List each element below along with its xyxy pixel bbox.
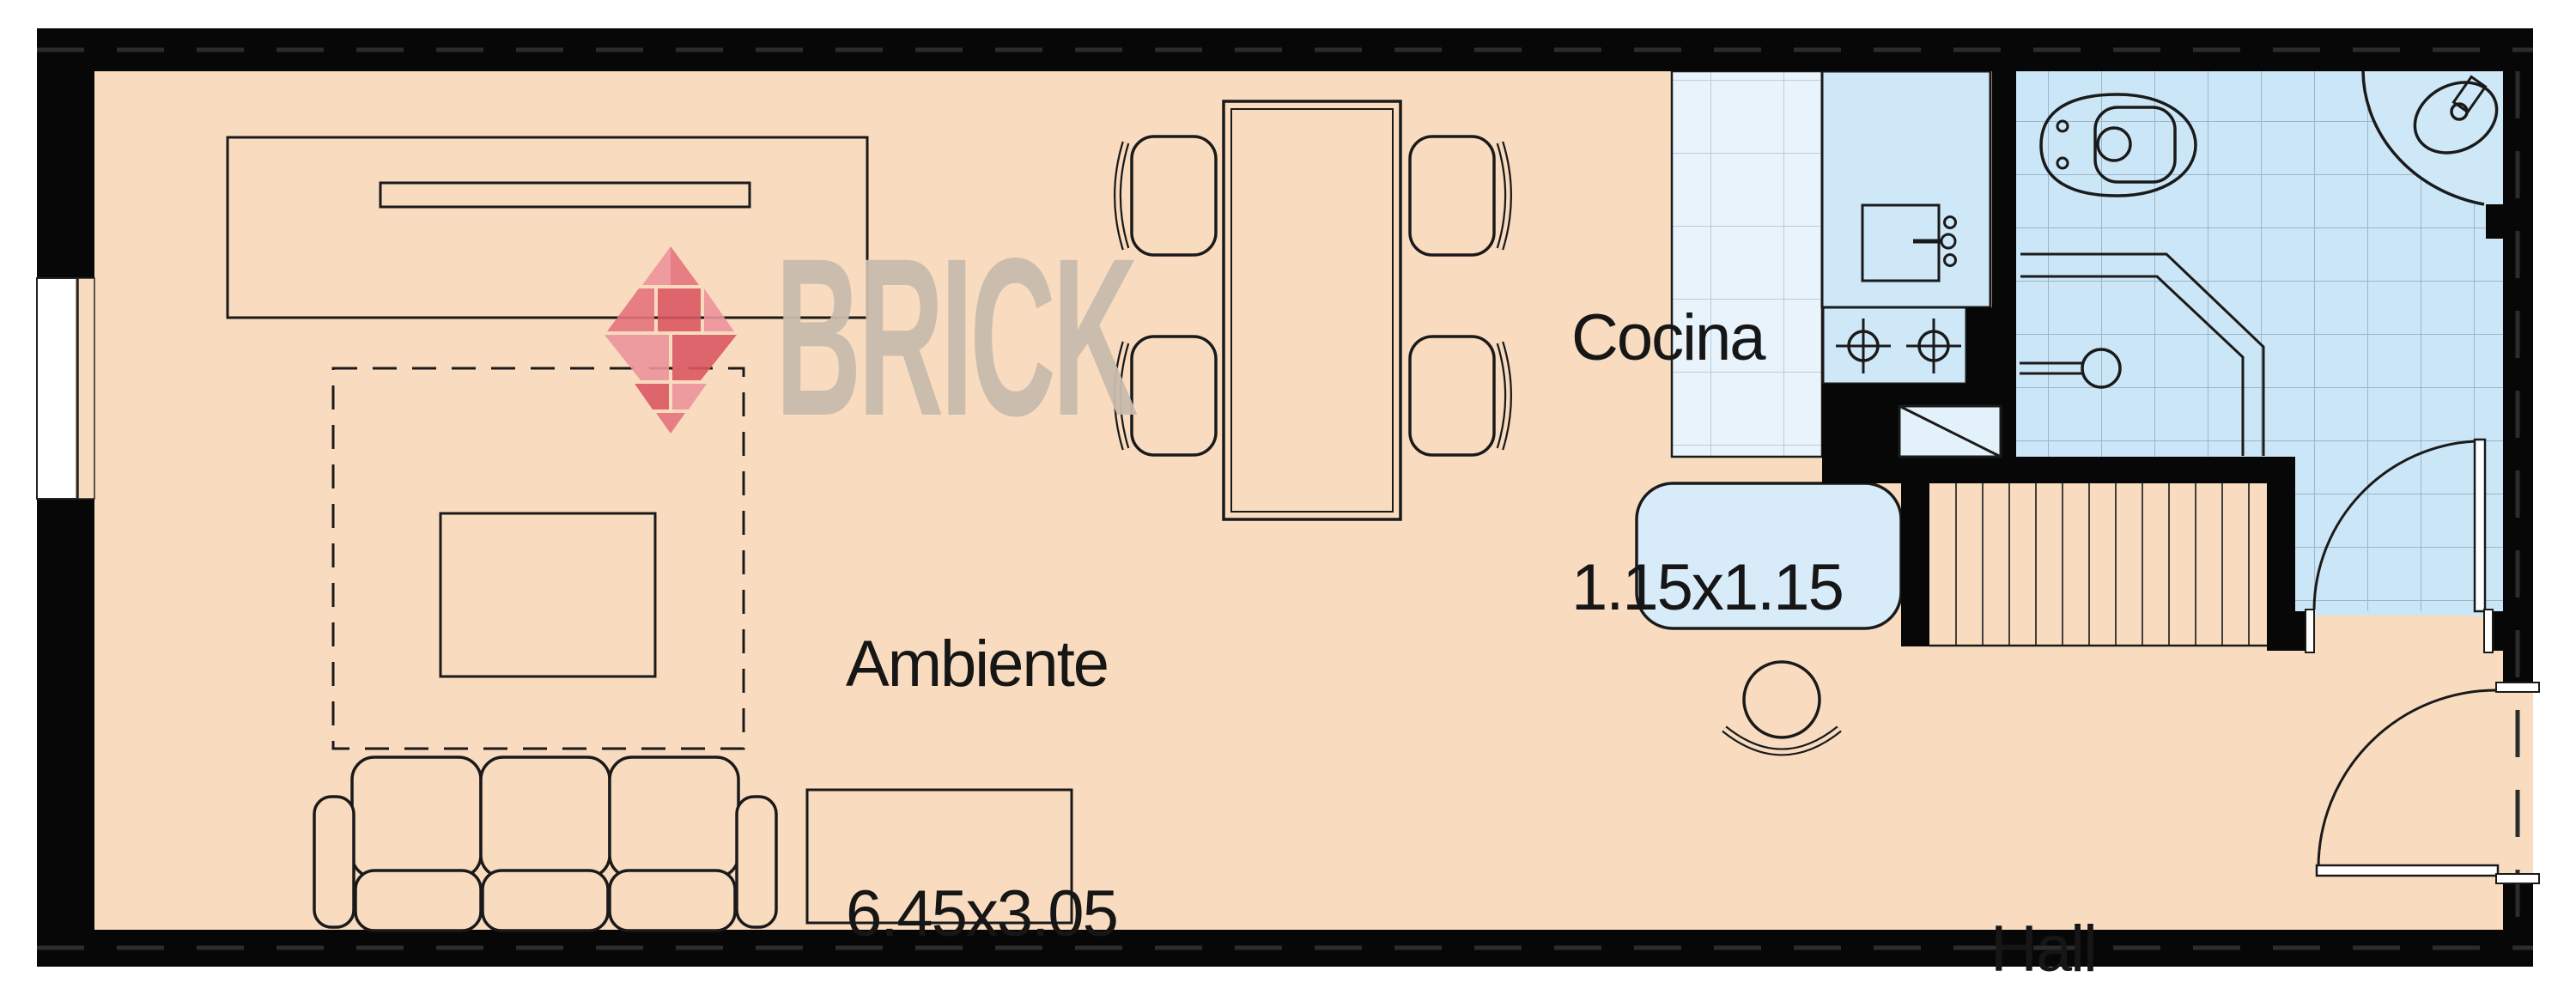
sofa-seat [483,871,608,931]
room-name: Cocina [1571,296,1843,379]
room-dimensions: 6.45x3.05 [846,872,1117,955]
brick-logo-text: BRICK [775,225,1135,450]
label-ambiente: Ambiente 6.45x3.05 [846,455,1117,1001]
label-hall: Hall 2.15x1.00 [1990,740,2262,1001]
sofa-seat [610,871,735,931]
pipe-chase [2486,204,2533,239]
room-dimensions: 1.15x1.15 [1571,546,1843,629]
window [37,278,94,499]
stairs [1929,483,2267,646]
bathroom-door-leaf [2475,440,2485,611]
room-name: Hall [1990,907,2262,991]
entry-door-leaf [2317,865,2498,876]
stove [1823,307,1966,384]
sofa-armrest [314,797,354,927]
kitchen-counter [1822,71,1990,307]
sofa-armrest [737,797,776,927]
door-jamb [2484,610,2493,652]
door-jamb [2496,874,2539,883]
vent-shaft [1899,406,2001,457]
door-jamb [2306,610,2314,652]
sofa-seat [355,871,481,931]
floor-plan-page: BRICK Ambiente 6.45x3.05 Cocina 1.15x1.1… [0,0,2576,1001]
label-cocina: Cocina 1.15x1.15 [1571,129,1843,713]
room-name: Ambiente [846,622,1117,706]
door-jamb [2496,682,2539,692]
sofa [314,757,776,931]
